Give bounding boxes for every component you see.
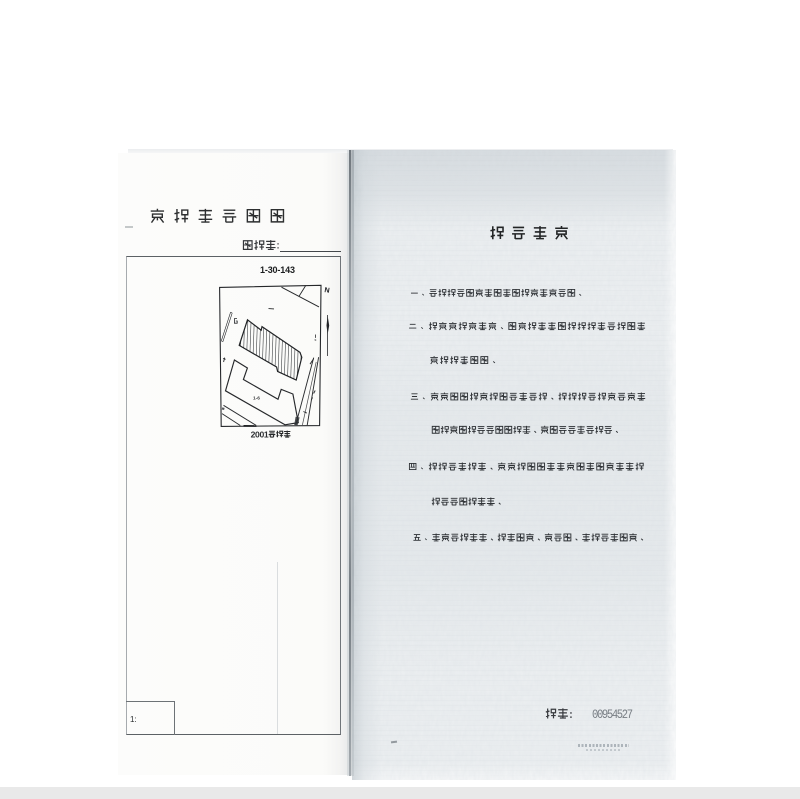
svg-text:N: N xyxy=(324,285,331,295)
svg-text:2001: 2001 xyxy=(251,430,269,440)
svg-text:1-6: 1-6 xyxy=(253,396,260,402)
